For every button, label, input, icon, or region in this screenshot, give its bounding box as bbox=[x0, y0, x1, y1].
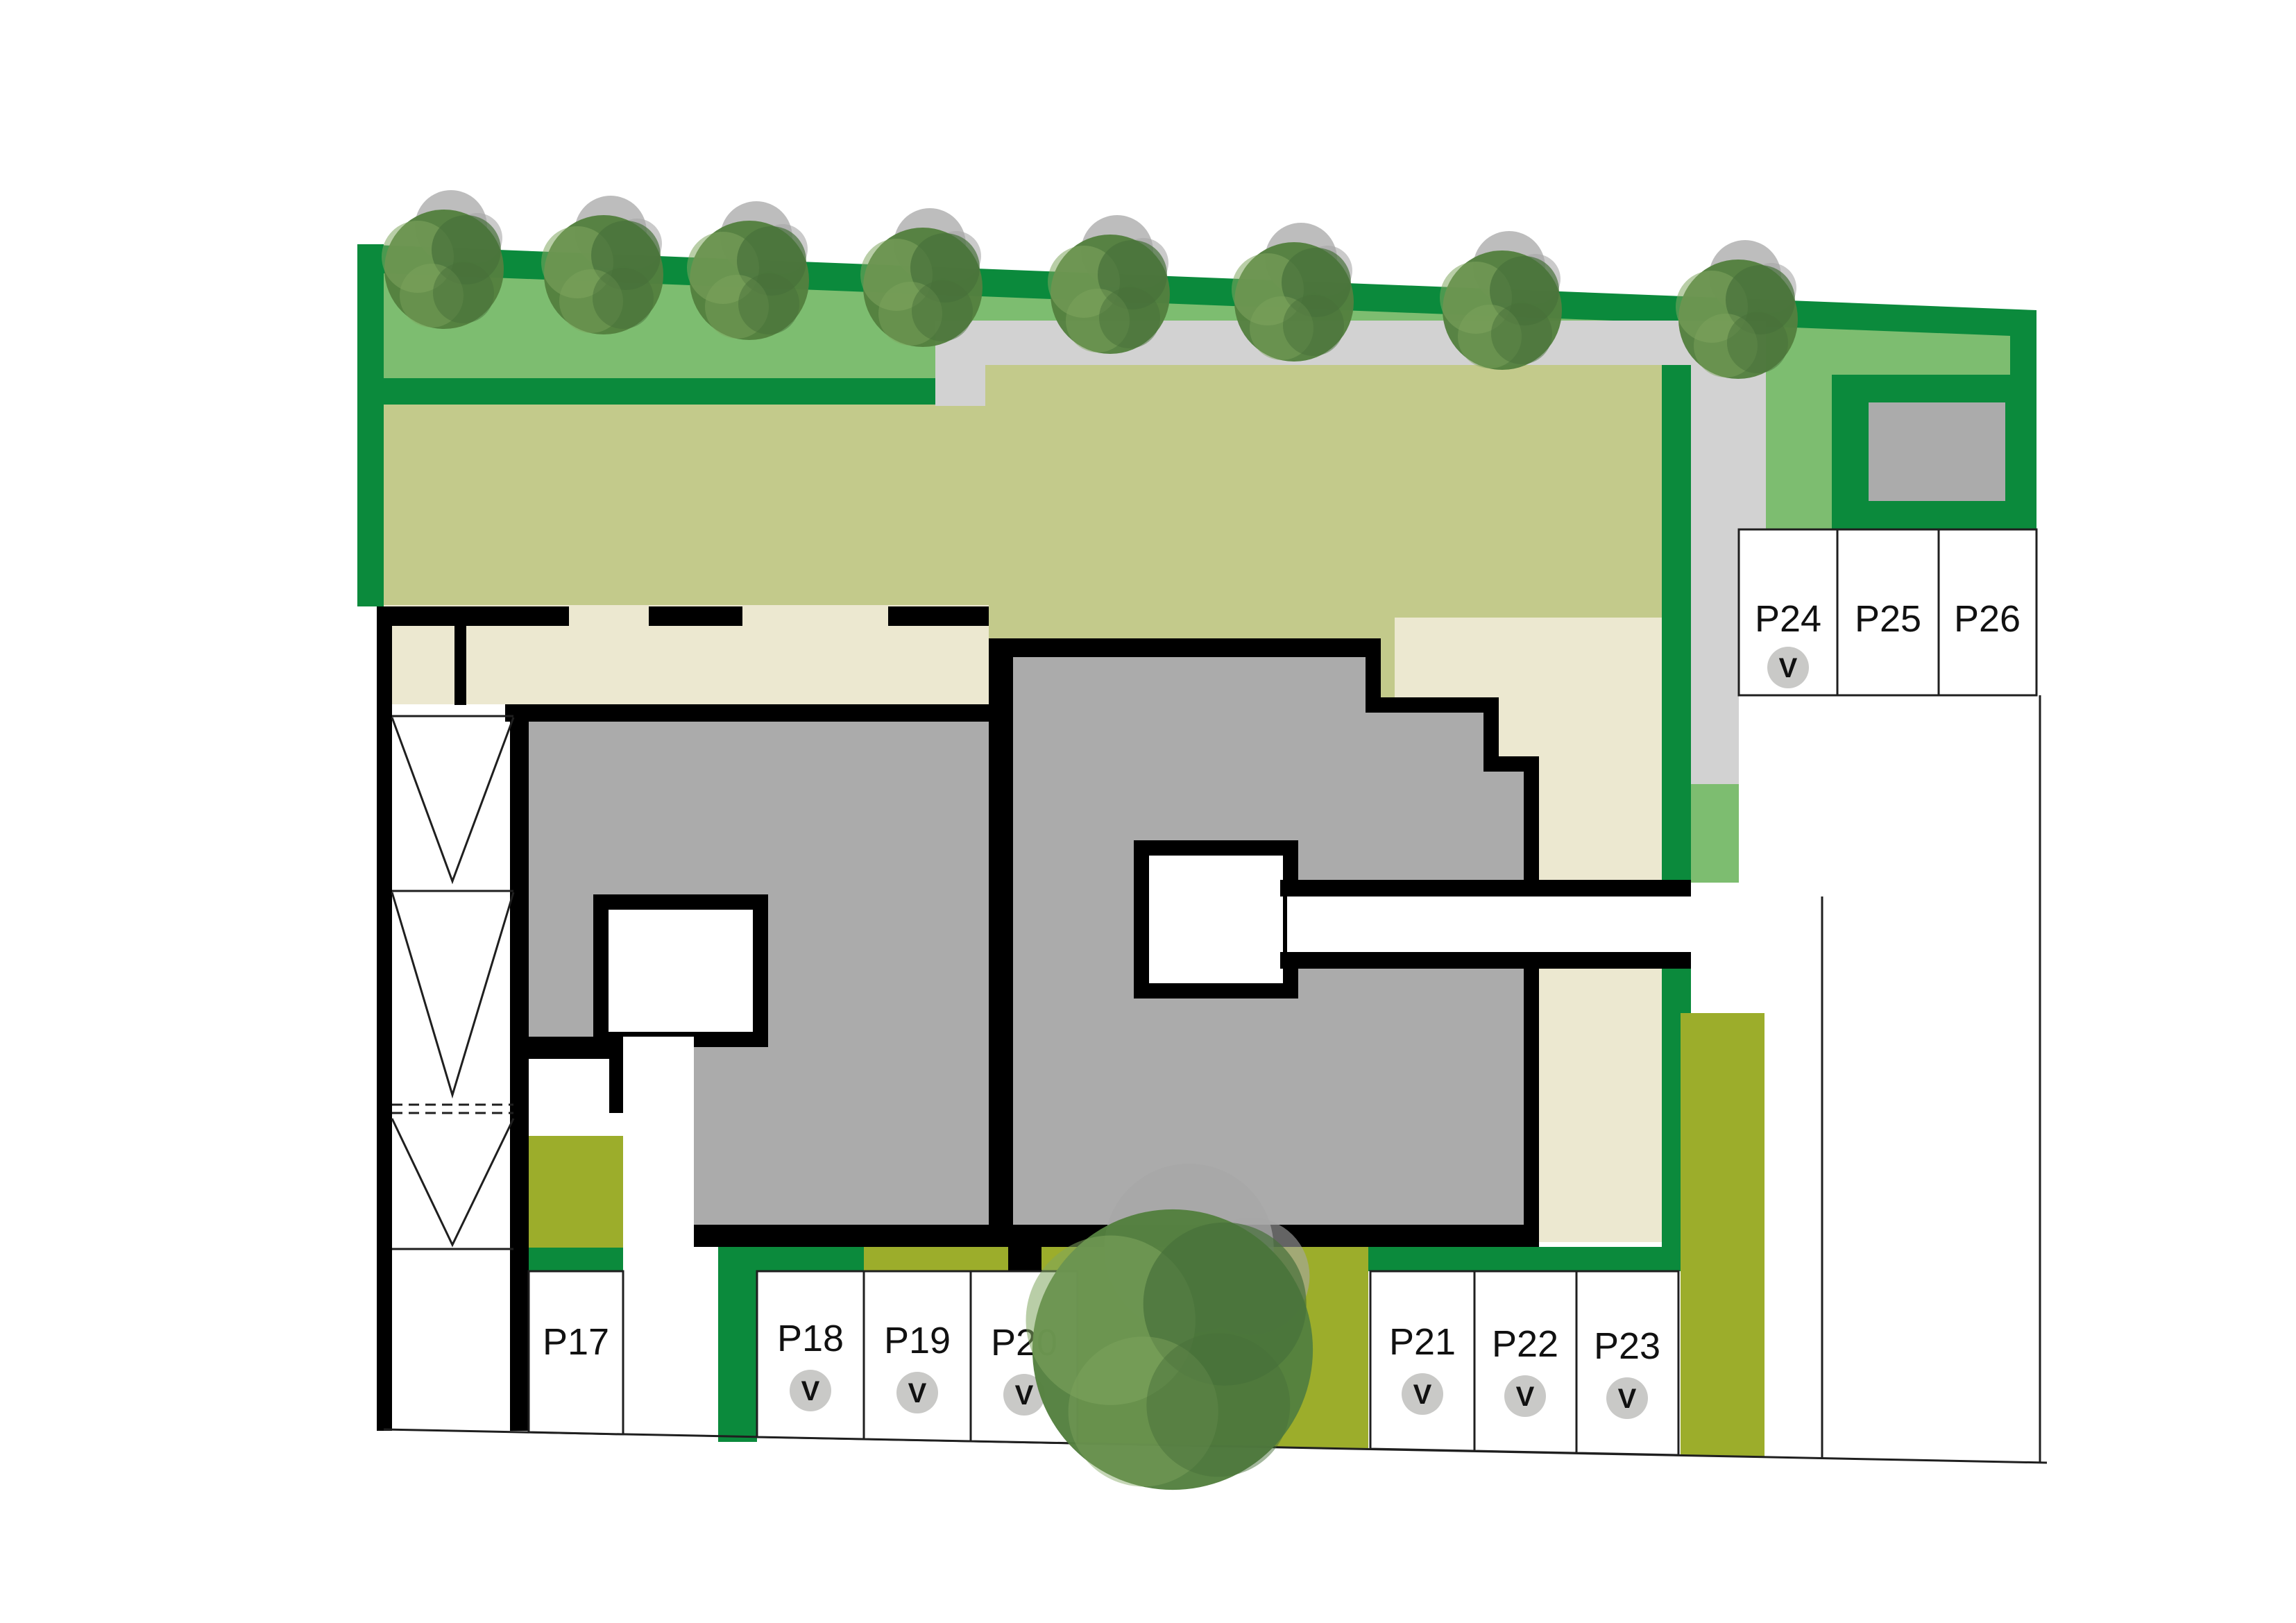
site-plan-drawing: P17 P18 P19 P20 P21 P22 P23 V V V V V V … bbox=[0, 0, 2296, 1623]
site-plan: P17 P18 P19 P20 P21 P22 P23 V V V V V V … bbox=[0, 0, 2296, 1623]
wall-south-step bbox=[1008, 1247, 1041, 1273]
wall-corridor-top bbox=[1280, 880, 1691, 897]
wall-corridor-bottom bbox=[1280, 952, 1691, 969]
parking-label-p26: P26 bbox=[1954, 598, 2021, 640]
gap-west-wing bbox=[529, 1059, 623, 1136]
parking-label-p17: P17 bbox=[543, 1321, 609, 1363]
wall-north-right-building bbox=[989, 638, 1381, 657]
wall-notch-2 bbox=[1366, 697, 1499, 713]
wall-east bbox=[1524, 756, 1539, 1247]
hedge-strip-east-upper bbox=[1662, 365, 1691, 880]
parking-label-p23: P23 bbox=[1594, 1325, 1660, 1367]
wall-shared bbox=[989, 638, 1013, 1247]
parking-label-p24: P24 bbox=[1755, 598, 1821, 640]
wall-terrace-segment-2 bbox=[649, 606, 742, 626]
garden-shed bbox=[1869, 402, 2005, 501]
hedge-west bbox=[357, 244, 384, 606]
valet-badge-label-p18: V bbox=[801, 1376, 820, 1407]
parking-label-p22: P22 bbox=[1492, 1323, 1558, 1365]
wall-ramp-west bbox=[377, 606, 392, 1431]
hedge-separator bbox=[384, 378, 935, 405]
garden-bed-west bbox=[384, 405, 935, 606]
valet-badge-label-p19: V bbox=[908, 1378, 927, 1409]
wall-west bbox=[510, 704, 529, 1431]
parking-right-row: P24 P25 P26 V bbox=[1739, 529, 2036, 695]
wall-terrace-tick bbox=[454, 626, 466, 705]
hedge-strip-above-p18 bbox=[718, 1247, 864, 1271]
parking-label-p25: P25 bbox=[1855, 598, 1921, 640]
hedge-strip-above-p17 bbox=[529, 1248, 623, 1271]
valet-badge-label-p21: V bbox=[1413, 1379, 1432, 1410]
valet-badge-label-p23: V bbox=[1618, 1384, 1637, 1414]
hedge-bar-left-of-p18 bbox=[718, 1271, 757, 1442]
meadow-above-p17 bbox=[529, 1136, 623, 1248]
parking-label-p19: P19 bbox=[884, 1320, 951, 1361]
valet-badge-label-p20: V bbox=[1015, 1380, 1034, 1411]
valet-badge-label-p24: V bbox=[1779, 653, 1798, 683]
walkway-north bbox=[935, 321, 1766, 365]
courtyard-left-building bbox=[601, 902, 760, 1039]
meadow-strip-east bbox=[1681, 1013, 1764, 1457]
hedge-strip-above-p21-p23 bbox=[1368, 1247, 1681, 1271]
lawn-patch-east bbox=[1691, 784, 1739, 883]
wall-north-left-building bbox=[505, 704, 1013, 722]
courtyard-right-building bbox=[1141, 848, 1291, 991]
valet-badge-label-p22: V bbox=[1516, 1382, 1535, 1412]
corridor-left-building bbox=[623, 1037, 694, 1434]
parking-label-p21: P21 bbox=[1389, 1321, 1456, 1363]
wall-terrace-segment-3 bbox=[888, 606, 989, 626]
corridor-right-building bbox=[1287, 897, 1825, 952]
parking-label-p18: P18 bbox=[777, 1318, 844, 1359]
walkway-hook bbox=[935, 365, 985, 406]
wall-corridor-jamb bbox=[609, 1037, 623, 1113]
wall-terrace-segment-1 bbox=[384, 606, 569, 626]
